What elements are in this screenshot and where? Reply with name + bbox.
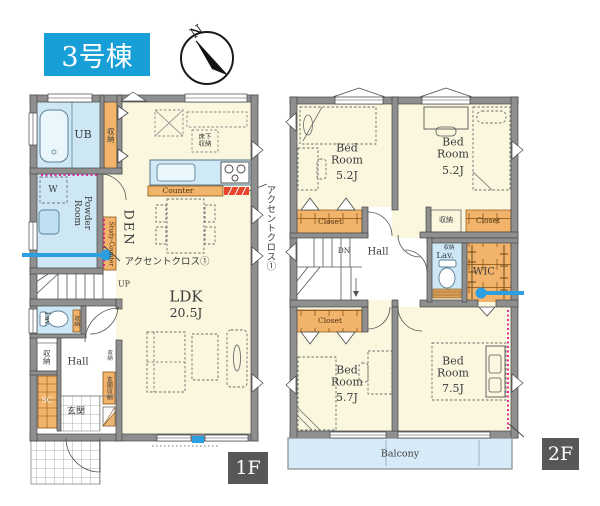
room-label-sc: SC: [41, 397, 53, 406]
floor-plan-page: 3号棟 N UB 収納 W Powder Room Study-Counter …: [0, 0, 600, 506]
label-closet-b: Closet: [318, 317, 342, 325]
room-size-bedroom4: 7.5J: [442, 383, 464, 395]
label-dn: DN: [338, 247, 351, 255]
room-label-lav-2f: Lav.: [436, 252, 453, 262]
highlighted-door-marker: [192, 436, 204, 443]
room-size-bedroom1: 5.2J: [336, 170, 358, 182]
north-arrow-icon: [181, 32, 233, 84]
room-label-lav-1f: Lav.: [42, 312, 50, 326]
room-label-wic: WIC: [473, 266, 495, 277]
room-size-bedroom2: 5.2J: [442, 165, 464, 177]
label-accent-cross-side: アクセントクロス①: [264, 185, 275, 271]
label-storage-lav-2f: 収納: [443, 245, 454, 251]
floor2-plan: [286, 88, 524, 469]
label-washer: W: [48, 185, 57, 195]
building-title-badge: 3号棟: [44, 33, 150, 76]
floor1-label: 1F: [228, 452, 268, 484]
room-label-bedroom4: Bed Room: [433, 356, 473, 381]
floor2-label: 2F: [542, 438, 579, 470]
label-storage-wall: 収納: [106, 350, 112, 361]
room-label-ub: UB: [74, 129, 91, 141]
label-storage-ub: 収納: [106, 128, 114, 143]
label-storage-lav-1f: 収納: [73, 316, 79, 327]
room-label-bedroom2: Bed Room: [433, 137, 473, 162]
room-label-ldk: LDK: [169, 289, 202, 306]
room-label-bedroom3: Bed Room: [327, 365, 367, 390]
room-label-hall-1f: Hall: [67, 356, 88, 367]
label-storage-hall: 収納: [42, 350, 50, 365]
label-closet-a: Closet: [318, 218, 342, 226]
label-closet-c: Closet: [476, 217, 500, 225]
label-counter: Counter: [163, 187, 194, 195]
room-size-bedroom3: 5.7J: [336, 392, 358, 404]
room-label-powder-room: Powder Room: [72, 189, 92, 237]
label-study-counter: Study-Counter: [107, 222, 114, 266]
label-genkan-storage: 玄関収納: [105, 376, 112, 400]
room-size-ldk: 20.5J: [170, 306, 203, 320]
room-label-bedroom1: Bed Room: [327, 143, 367, 168]
room-label-balcony: Balcony: [381, 450, 419, 461]
label-up: UP: [118, 281, 130, 290]
label-floor-storage: 床下収納: [197, 134, 213, 149]
label-storage-box-2f: 収納: [439, 217, 453, 225]
room-label-den: DEN: [120, 209, 135, 246]
room-label-genkan: 玄関: [67, 407, 85, 417]
floor1-plan: [22, 92, 267, 484]
room-label-hall-2f: Hall: [367, 246, 388, 257]
label-accent-cross-ldk: アクセントクロス①: [124, 258, 209, 269]
